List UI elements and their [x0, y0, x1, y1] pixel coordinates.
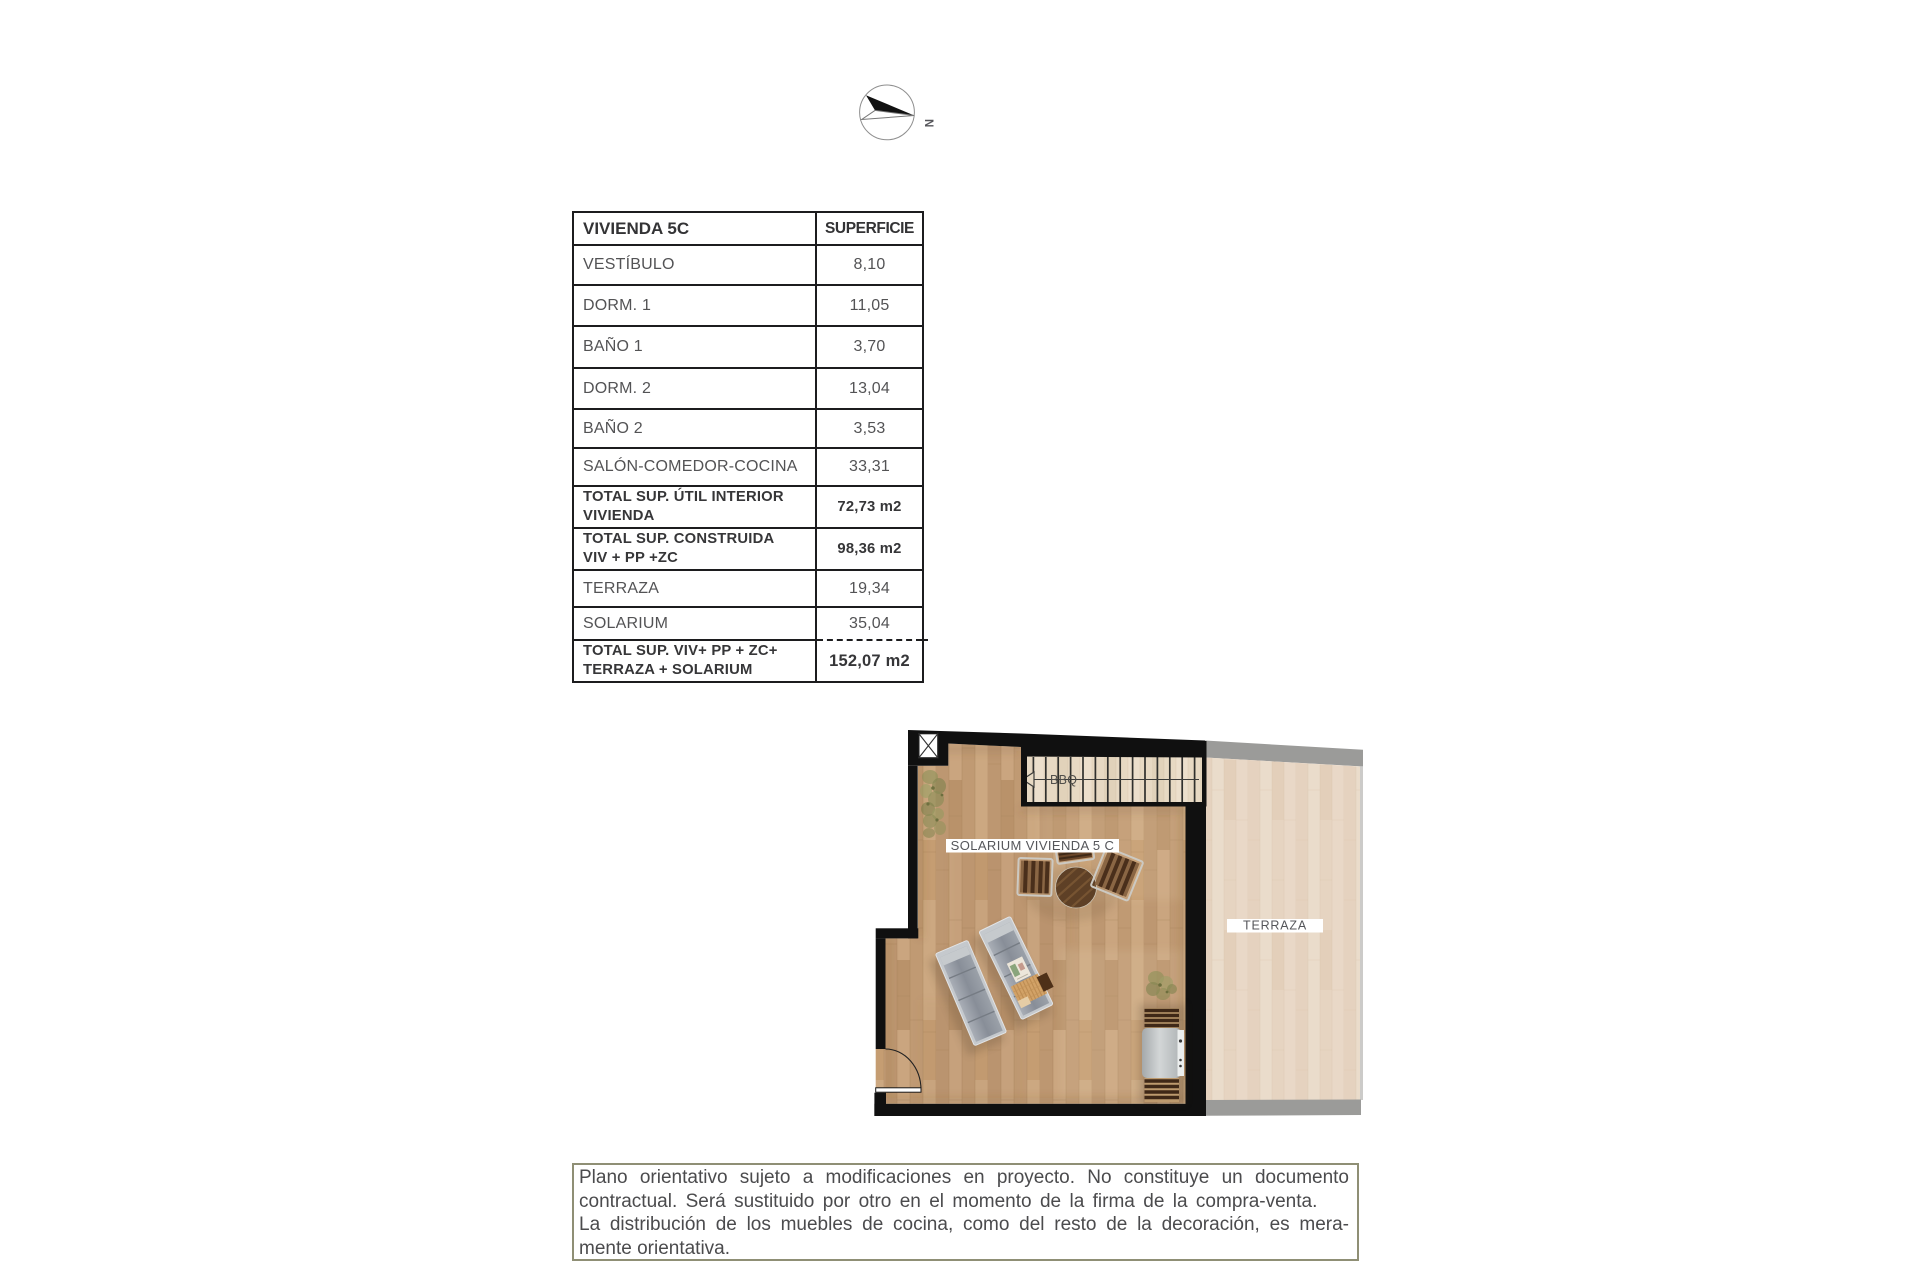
svg-text:TERRAZA: TERRAZA [1243, 919, 1307, 933]
svg-text:BBQ: BBQ [1050, 773, 1077, 787]
svg-text:N: N [922, 119, 934, 127]
svg-text:SOLARIUM VIVIENDA 5 C: SOLARIUM VIVIENDA 5 C [951, 838, 1115, 853]
